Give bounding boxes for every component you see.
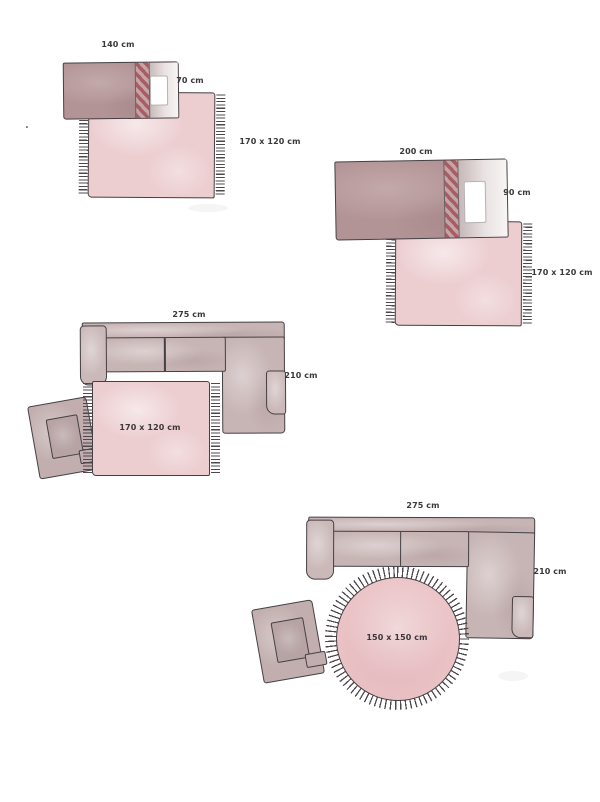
seat-cushion-divider xyxy=(400,532,401,566)
sofa-left-armrest xyxy=(306,520,334,580)
sofa4-width-label: 275 cm xyxy=(398,501,448,510)
sofa-chaise xyxy=(222,336,286,433)
sofa-chaise-armrest xyxy=(511,596,534,638)
sofa-seat-cushions xyxy=(332,531,469,567)
stray-dot-mark: . xyxy=(25,120,29,131)
rug-fringe-right xyxy=(215,94,225,196)
bed2-width-label: 200 cm xyxy=(391,147,441,156)
rug-size-guide-illustration: . 140 cm 70 cm 170 x 120 cm 200 cm 90 cm… xyxy=(0,0,600,802)
rug2-size-label: 170 x 120 cm xyxy=(531,268,593,277)
rug1-size-label: 170 x 120 cm xyxy=(239,137,301,146)
sofa3-depth-label: 210 cm xyxy=(281,371,321,380)
blanket-stripe-band xyxy=(135,63,151,118)
bed1-width-label: 140 cm xyxy=(93,40,143,49)
rug-fringe-right xyxy=(211,383,220,474)
seat-cushion-divider xyxy=(164,338,165,371)
blanket-stripe-band xyxy=(443,160,459,237)
bed-illustration-diagram1 xyxy=(63,61,180,119)
bed2-depth-label: 90 cm xyxy=(497,188,537,197)
pencil-smudge xyxy=(498,671,528,681)
sofa-left-armrest xyxy=(80,325,107,385)
bed1-depth-label: 70 cm xyxy=(170,76,210,85)
sofa3-width-label: 275 cm xyxy=(164,310,214,319)
armchair-footrest xyxy=(304,651,327,668)
pillow xyxy=(150,76,168,106)
pillow xyxy=(464,181,487,223)
sofa4-depth-label: 210 cm xyxy=(530,567,570,576)
bed-illustration-diagram2 xyxy=(334,158,508,240)
rug-fringe-left xyxy=(83,383,92,474)
armchair-illustration-diagram4 xyxy=(251,599,325,684)
rug4-size-label: 150 x 150 cm xyxy=(366,633,428,642)
sofa-chaise xyxy=(465,531,535,639)
pencil-smudge xyxy=(188,204,228,212)
rug3-size-label: 170 x 120 cm xyxy=(119,423,181,432)
sofa-seat-cushions xyxy=(104,337,226,373)
